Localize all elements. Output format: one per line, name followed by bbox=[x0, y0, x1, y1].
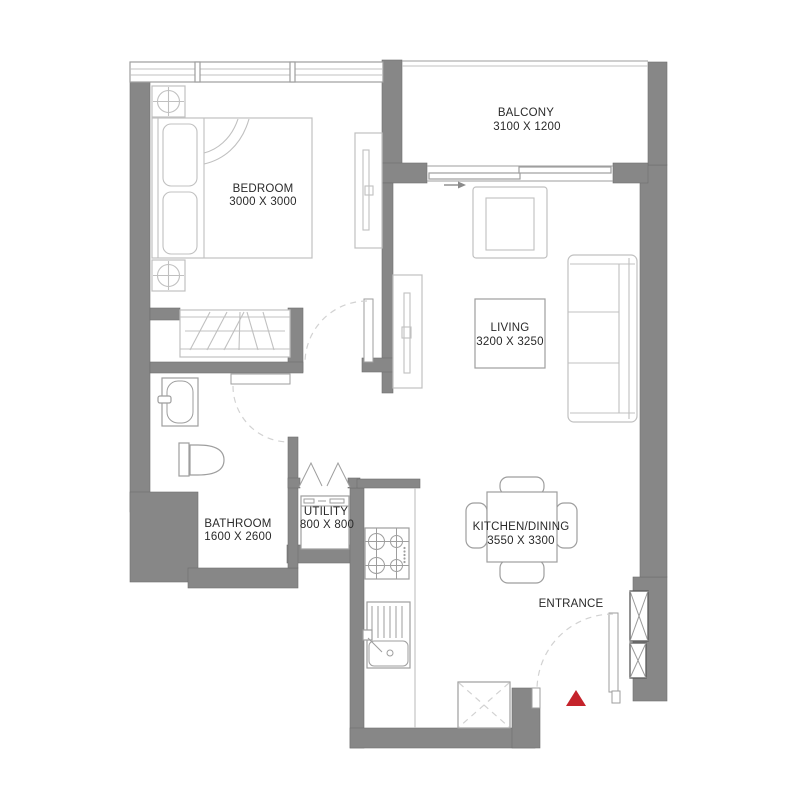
utility-bifold-door bbox=[299, 463, 350, 487]
sofa bbox=[568, 255, 637, 422]
room-utility: UTILITY 800 X 800 bbox=[299, 463, 354, 549]
wall-utility-jamb-left bbox=[288, 478, 300, 488]
kitchen-dining-dims: 3550 X 3300 bbox=[487, 535, 554, 547]
bedroom-tv-unit bbox=[355, 133, 382, 248]
bathroom-label: BATHROOM bbox=[204, 518, 271, 530]
entrance-marker bbox=[566, 690, 586, 706]
faucet-icon bbox=[158, 396, 171, 403]
slide-direction-arrow-icon bbox=[444, 182, 466, 189]
wall-bottom bbox=[350, 728, 535, 748]
wall-slider-stub-right bbox=[613, 163, 648, 183]
floor-plan-canvas: BEDROOM 3000 X 3000 B bbox=[0, 0, 800, 800]
service-shaft bbox=[458, 682, 510, 728]
bathroom-door bbox=[231, 374, 290, 442]
wall-bathroom-top bbox=[150, 362, 303, 373]
vanity-sink bbox=[158, 378, 198, 426]
wall-bedroom-bottom-stub bbox=[150, 308, 180, 320]
wall-balcony-right bbox=[648, 62, 667, 165]
wall-left bbox=[130, 75, 150, 512]
living-dims: 3200 X 3250 bbox=[476, 336, 543, 348]
stove bbox=[365, 528, 409, 579]
bedroom-label: BEDROOM bbox=[233, 183, 294, 195]
floor-plan: BEDROOM 3000 X 3000 B bbox=[0, 0, 800, 800]
riser-shafts bbox=[630, 591, 648, 678]
bedroom-dims: 3000 X 3000 bbox=[229, 196, 296, 208]
utility-label: UTILITY bbox=[304, 506, 348, 518]
entrance-label: ENTRANCE bbox=[539, 598, 604, 610]
room-living: LIVING 3200 X 3250 bbox=[393, 187, 637, 422]
wall-bathroom-right bbox=[288, 437, 298, 568]
balcony-sliding-door bbox=[427, 166, 613, 189]
bedroom-window bbox=[130, 62, 383, 82]
sliding-panel bbox=[519, 167, 611, 173]
wall-kitchen-top bbox=[357, 479, 420, 488]
entrance: ENTRANCE bbox=[532, 591, 648, 708]
toilet bbox=[179, 443, 224, 476]
wall-right-main bbox=[640, 165, 667, 577]
sliding-panel bbox=[429, 173, 520, 179]
balcony-dims: 3100 X 1200 bbox=[493, 121, 560, 133]
bedroom-door bbox=[305, 299, 373, 363]
dining-set: KITCHEN/DINING 3550 X 3300 bbox=[466, 477, 577, 583]
door-jamb bbox=[532, 688, 540, 708]
faucet-icon bbox=[363, 630, 372, 640]
kitchen-dining-label: KITCHEN/DINING bbox=[473, 521, 570, 533]
armchair bbox=[473, 187, 547, 258]
utility-dims: 800 X 800 bbox=[300, 519, 354, 531]
balcony-label: BALCONY bbox=[498, 107, 554, 119]
nightstand bbox=[152, 260, 185, 291]
kitchen-sink bbox=[363, 602, 410, 668]
window-mullion bbox=[290, 62, 295, 82]
wall-slider-stub-left bbox=[382, 163, 427, 183]
toilet-bowl bbox=[190, 445, 224, 475]
room-bedroom: BEDROOM 3000 X 3000 bbox=[152, 86, 382, 291]
living-label: LIVING bbox=[491, 322, 530, 334]
door-jamb bbox=[612, 691, 620, 703]
window-mullion bbox=[195, 62, 200, 82]
dining-chair bbox=[500, 560, 544, 583]
nightstand bbox=[152, 86, 185, 117]
wall-pier-bedroom-balcony bbox=[382, 60, 402, 165]
room-balcony: BALCONY 3100 X 1200 bbox=[493, 107, 560, 133]
wardrobe bbox=[180, 310, 290, 357]
balcony-railing bbox=[402, 61, 648, 66]
wall-bathroom-bottom bbox=[188, 568, 298, 588]
living-tv-unit bbox=[393, 275, 422, 388]
bathroom-dims: 1600 X 2600 bbox=[204, 531, 271, 543]
